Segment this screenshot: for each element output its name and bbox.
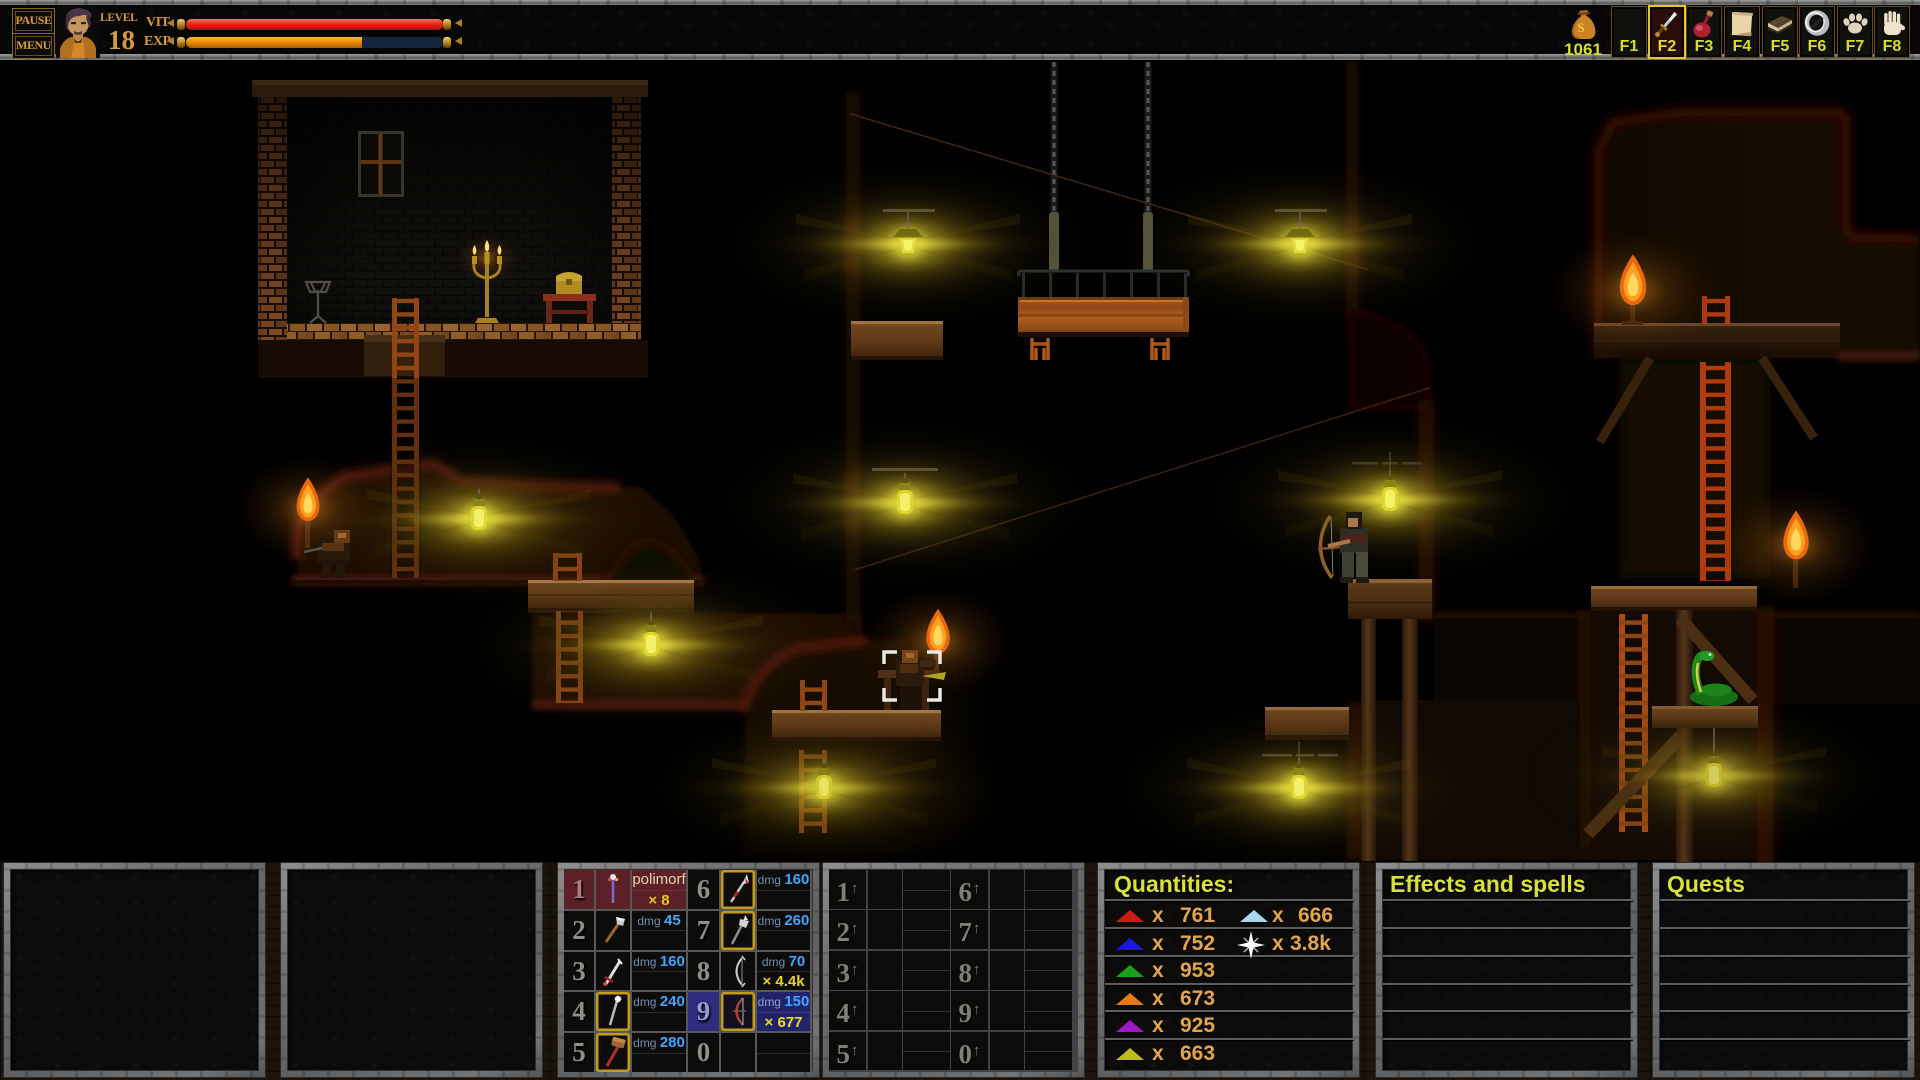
svg-text:S: S xyxy=(1577,20,1584,35)
